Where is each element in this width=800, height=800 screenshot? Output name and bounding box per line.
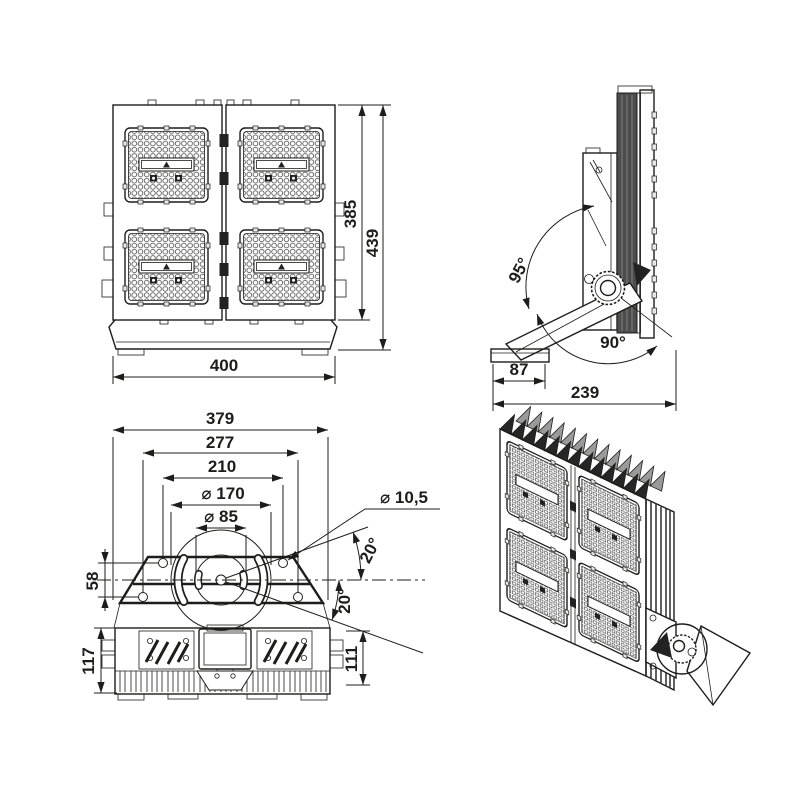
led-module bbox=[238, 228, 325, 306]
dim-bolt-circle-inner-label: ⌀ 85 bbox=[204, 507, 238, 526]
dim-front-total-height-label: 439 bbox=[363, 229, 382, 257]
mount-hole bbox=[159, 559, 168, 568]
junction-box bbox=[199, 625, 251, 678]
led-module bbox=[123, 126, 210, 204]
side-view: 95° 90° 87 239 bbox=[491, 86, 676, 411]
dim-plate-width-label: 379 bbox=[206, 409, 234, 428]
floodlight-dimension-drawing: 385 439 400 bbox=[0, 0, 800, 800]
led-module bbox=[123, 228, 210, 306]
dim-height-left-label: 117 bbox=[79, 647, 98, 674]
technical-drawing-sheet: 385 439 400 bbox=[0, 0, 800, 800]
dim-base-width-label: 87 bbox=[510, 360, 529, 379]
mount-hole bbox=[294, 593, 303, 602]
iso-bracket bbox=[646, 608, 750, 705]
dim-bolt-circle-outer-label: ⌀ 170 bbox=[201, 484, 244, 503]
dim-holes-inner-label: 210 bbox=[208, 457, 236, 476]
led-module bbox=[505, 525, 569, 631]
led-module bbox=[238, 126, 325, 204]
dim-swivel-down-angle-label: 90° bbox=[600, 333, 626, 352]
dim-holes-outer-label: 277 bbox=[206, 433, 234, 452]
mount-hole bbox=[139, 593, 148, 602]
front-view: 385 439 400 bbox=[102, 100, 391, 384]
dim-hole-row-offset-label: 58 bbox=[83, 572, 102, 591]
isometric-view bbox=[500, 407, 750, 705]
vent-box bbox=[139, 631, 194, 669]
dim-front-width-label: 400 bbox=[210, 356, 238, 375]
dim-front-body-height-label: 385 bbox=[341, 200, 360, 228]
swivel-pivot bbox=[592, 272, 625, 305]
dim-swivel-up-angle-label: 95° bbox=[505, 254, 534, 286]
mount-hole bbox=[279, 559, 288, 568]
mounting-view: 379 277 210 ⌀ 170 ⌀ 85 ⌀ 10,5 bbox=[79, 409, 440, 700]
dim-height-right-label: 111 bbox=[342, 646, 361, 673]
dim-hole-diameter-label: ⌀ 10,5 bbox=[380, 488, 428, 507]
dim-angle-down-label: 20° bbox=[335, 588, 354, 614]
dim-total-depth-label: 239 bbox=[571, 383, 599, 402]
vent-box bbox=[257, 631, 312, 669]
